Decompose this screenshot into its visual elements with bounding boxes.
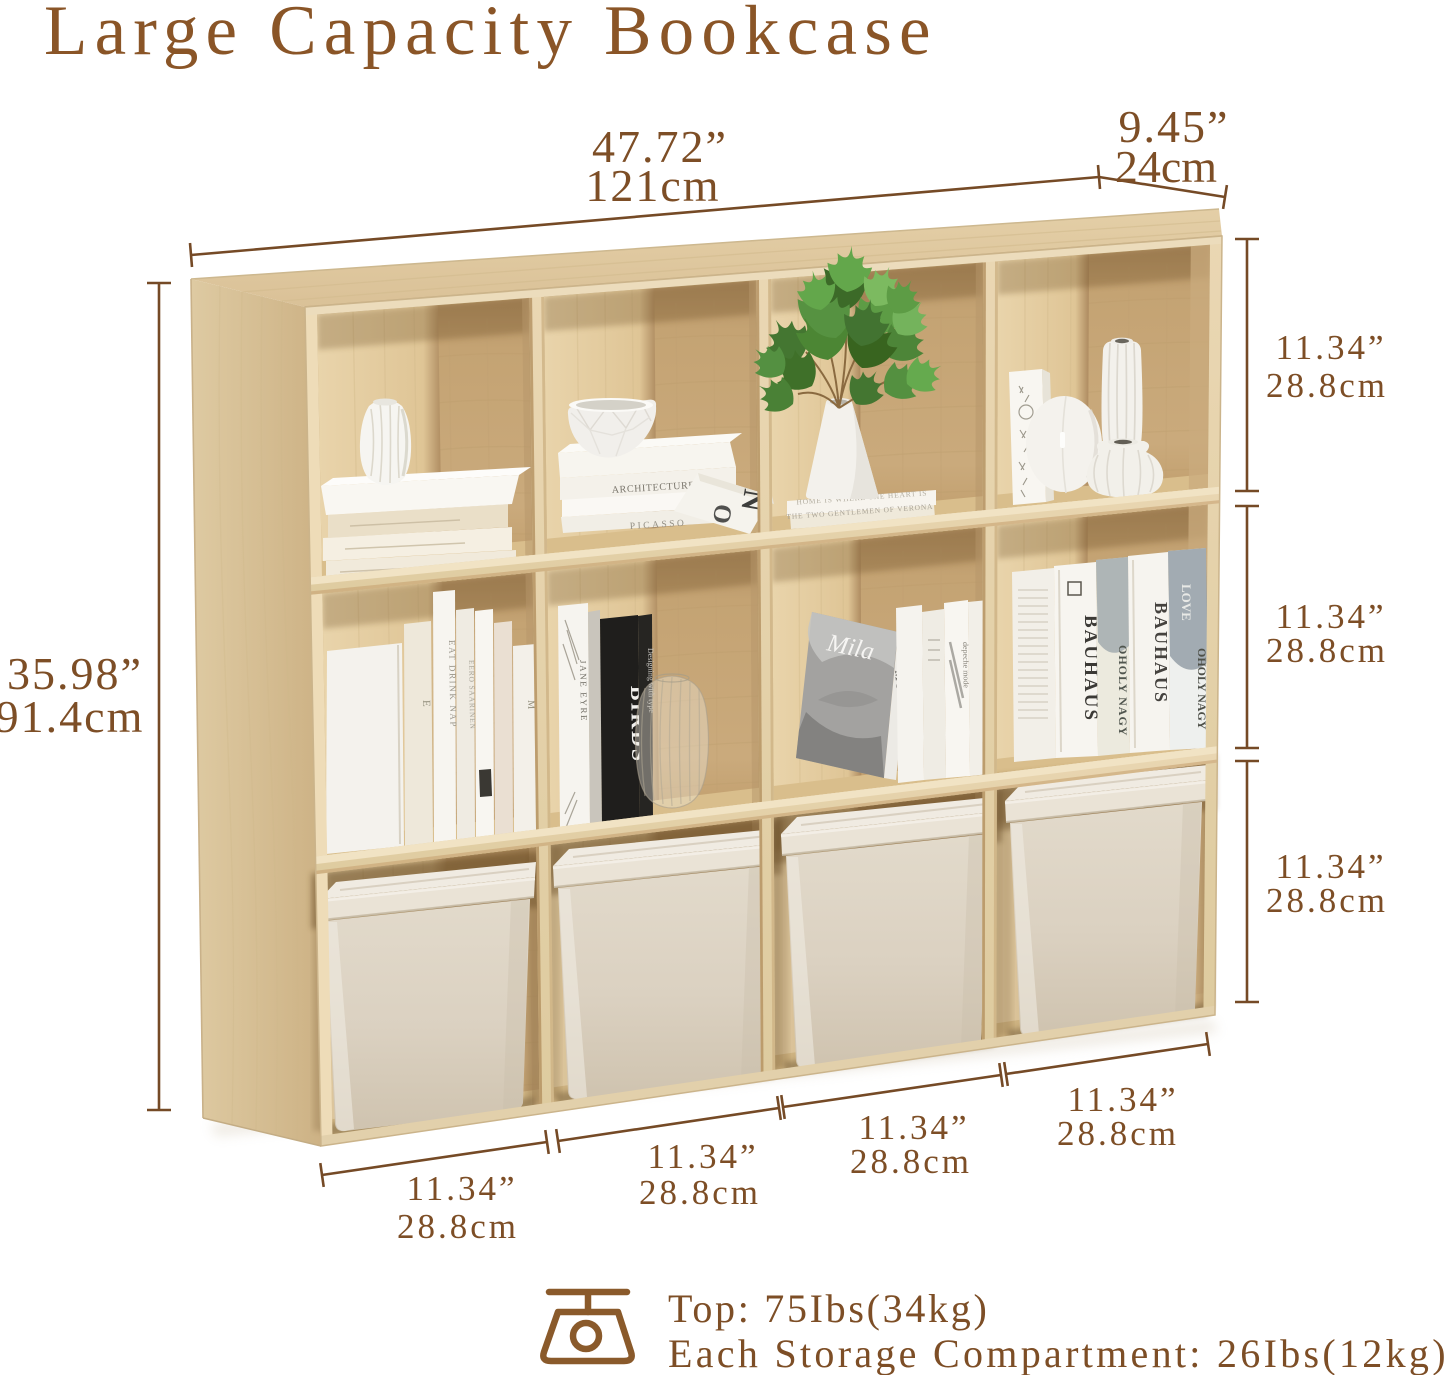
svg-text:28.8cm: 28.8cm — [850, 1142, 972, 1181]
svg-text:24cm: 24cm — [1115, 141, 1217, 192]
svg-text:11.34”: 11.34” — [648, 1137, 759, 1176]
svg-text:28.8cm: 28.8cm — [1266, 631, 1388, 670]
svg-text:E: E — [420, 700, 432, 707]
svg-text:91.4cm: 91.4cm — [0, 691, 144, 742]
svg-text:28.8cm: 28.8cm — [639, 1173, 761, 1212]
svg-text:121cm: 121cm — [585, 160, 720, 211]
svg-text:Each Storage Compartment: 26Ib: Each Storage Compartment: 26Ibs(12kg) — [668, 1331, 1445, 1375]
svg-text:OHOLY NAGY: OHOLY NAGY — [1116, 645, 1130, 736]
svg-text:28.8cm: 28.8cm — [1057, 1114, 1179, 1153]
svg-text:Large Capacity Bookcase: Large Capacity Bookcase — [44, 0, 938, 70]
svg-text:Top: 75Ibs(34kg): Top: 75Ibs(34kg) — [668, 1286, 989, 1331]
svg-text:BAUHAUS: BAUHAUS — [1151, 602, 1171, 704]
svg-text:11.34”: 11.34” — [1276, 328, 1387, 367]
svg-text:11.34”: 11.34” — [407, 1169, 518, 1208]
svg-text:28.8cm: 28.8cm — [1266, 366, 1388, 405]
svg-text:28.8cm: 28.8cm — [397, 1207, 519, 1246]
svg-text:JANE EYRE: JANE EYRE — [578, 660, 589, 722]
svg-text:28.8cm: 28.8cm — [1266, 881, 1388, 920]
svg-text:LOVE: LOVE — [1179, 584, 1194, 621]
